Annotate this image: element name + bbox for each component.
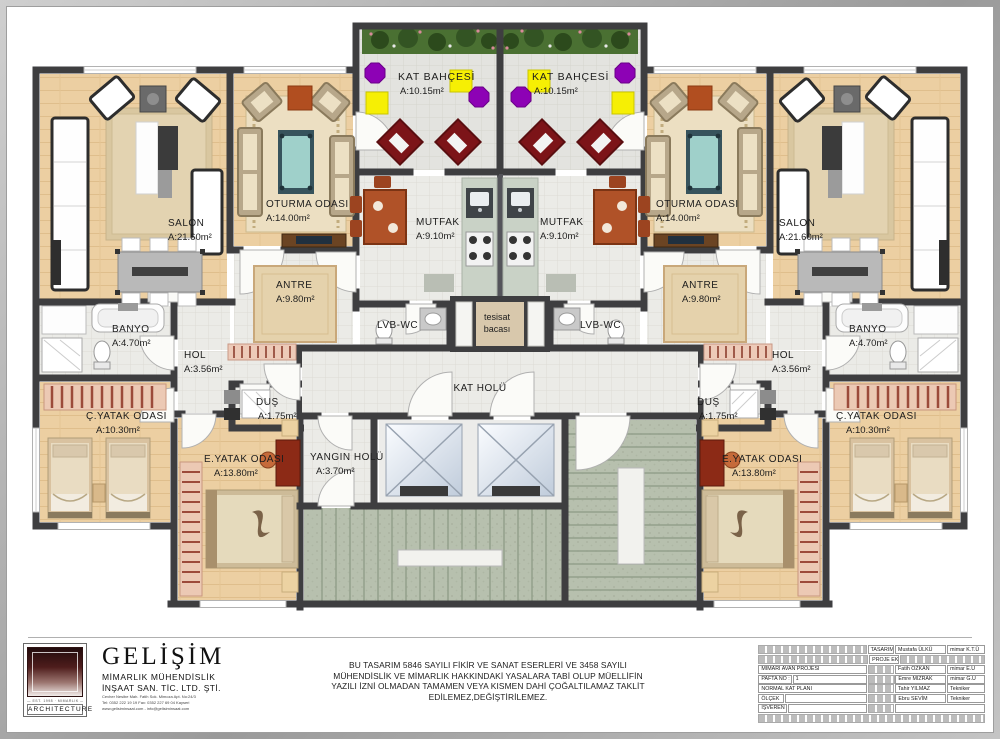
label-oturma-left-name: OTURMA ODASI [266,199,349,210]
brand-web: www.gelisiminsaat.com - info@gelisiminsa… [102,706,224,711]
disclaimer-line4: EDİLEMEZ,DEĞİŞTİRİLEMEZ. [288,692,688,703]
brand-phone: Tel: 0352 222 19 19 Fax: 0352 227 69 04 … [102,700,224,705]
label-katbahcesi-right-area: A:10.15m² [534,86,578,97]
copyright-disclaimer: BU TASARIM 5846 SAYILI FİKİR VE SANAT ES… [288,660,688,702]
company-logo: — EST. 1998 · MİMARLIK — İNŞAAT — ARCHIT… [23,643,87,717]
stair-landing-h [398,550,502,566]
label-hol-right-name: HOL [772,350,794,361]
project-type: MİMARİ AVAN PROJESİ [758,665,866,674]
label-salon-left-name: SALON [168,218,204,229]
label-dus-left-name: DUŞ [256,397,279,408]
drawing-sheet-page: KAT BAHÇESİ KAT BAHÇESİ A:10.15m² A:10.1… [0,0,1000,739]
label-eyatak-right-name: E.YATAK ODASI [722,454,802,465]
label-cyatak-left-name: Ç.YATAK ODASI [86,411,167,422]
team-name: Tahir YILMAZ [895,684,946,693]
label-hol-left-area: A:3.56m² [184,364,223,375]
olcek-value [785,694,868,703]
floor-plan: KAT BAHÇESİ KAT BAHÇESİ A:10.15m² A:10.1… [0,0,1000,739]
checker-strip [868,704,894,713]
label-yangin-name: YANGIN HOLÜ [310,451,384,463]
checker-strip [868,694,895,703]
label-hol-right-area: A:3.56m² [772,364,811,375]
empty-cell [895,704,985,713]
label-cyatak-right-name: Ç.YATAK ODASI [836,411,917,422]
label-katbahcesi-left-area: A:10.15m² [400,86,444,97]
pafta-value: 1 [793,675,868,684]
label-yangin-area: A:3.70m² [316,466,355,477]
label-mutfak-left-area: A:9.10m² [416,231,455,242]
label-eyatak-right-area: A:13.80m² [732,468,776,479]
label-banyo-left-name: BANYO [112,324,150,335]
label-tesisat-1: tesisat [484,312,511,322]
checker-strip [900,655,985,664]
checker-strip [868,665,895,674]
disclaimer-line1: BU TASARIM 5846 SAYILI FİKİR VE SANAT ES… [288,660,688,671]
logo-architecture-label: ARCHITECTURE [27,704,83,715]
brand-address: Cevher Nesibe Mah. Fatih Sok. Mimoza Apt… [102,694,224,699]
label-oturma-left-area: A:14.00m² [266,213,310,224]
tasarim-label: TASARIM [868,645,895,654]
team-title: Tekniker [947,684,985,693]
label-oturma-right-name: OTURMA ODASI [656,199,739,210]
disclaimer-line3: YAZILI İZNİ OLMADAN TAMAMEN VEYA KISMEN … [288,681,688,692]
label-mutfak-left-name: MUTFAK [416,217,460,228]
tasarim-name: Mustafa ÜLKÜ [895,645,946,654]
label-mutfak-right-area: A:9.10m² [540,231,579,242]
label-oturma-right-area: A:14.00m² [656,213,700,224]
label-eyatak-left-name: E.YATAK ODASI [204,454,284,465]
label-mutfak-right-name: MUTFAK [540,217,584,228]
label-banyo-right-area: A:4.70m² [849,338,888,349]
tasarim-title: mimar K.T.Ü [947,645,985,654]
team-title: Tekniker [947,694,984,703]
label-antre-right-area: A:9.80m² [682,294,721,305]
label-salon-right-name: SALON [779,218,815,229]
label-dus-left-area: A:1.75m² [258,411,297,422]
pafta-label: PAFTA NO : [758,675,791,684]
team-name: Emre MIZRAK [895,675,946,684]
sheet-title: NORMAL KAT PLANI [758,684,866,693]
checker-strip [758,655,868,664]
checker-strip [868,684,895,693]
stair-landing-v [618,468,644,564]
logo-mark [27,647,83,697]
disclaimer-line2: MÜHENDİSLİK VE MİMARLIK HAKKINDAKİ YASAL… [288,671,688,682]
label-antre-left-name: ANTRE [276,280,312,291]
label-antre-right-name: ANTRE [682,280,718,291]
footer-separator [28,637,972,638]
brand-name: GELİŞİM [102,645,224,669]
label-lvbwc-left: LVB-WC [377,320,418,331]
label-banyo-right-name: BANYO [849,324,887,335]
checker-strip [758,645,866,654]
team-title: mimar G.Ü [947,675,984,684]
brand-line2: İNŞAAT SAN. TİC. LTD. ŞTİ. [102,683,224,693]
label-tesisat-2: bacası [484,324,511,334]
label-banyo-left-area: A:4.70m² [112,338,151,349]
olcek-label: ÖLÇEK [758,694,784,703]
label-hol-left-name: HOL [184,350,206,361]
label-dus-right-name: DUŞ [697,397,720,408]
team-name: Fatih ÖZKAN [895,665,946,674]
label-dus-right-area: A:1.75m² [699,411,738,422]
proje-ekibi-label: PROJE EKİBİ [869,655,899,664]
label-katholu: KAT HOLÜ [453,382,506,394]
brand-line1: MİMARLIK MÜHENDİSLİK [102,672,224,682]
label-eyatak-left-area: A:13.80m² [214,468,258,479]
label-salon-right-area: A:21.60m² [779,232,823,243]
label-katbahcesi-left-name: KAT BAHÇESİ [398,70,475,83]
team-title: mimar E.Ü [947,665,985,674]
isveren-value [788,704,867,713]
label-katbahcesi-right-name: KAT BAHÇESİ [532,70,609,83]
title-block-table: TASARIM Mustafa ÜLKÜ mimar K.T.Ü PROJE E… [758,645,985,723]
team-name: Ebru SEVİM [895,694,946,703]
company-name-block: GELİŞİM MİMARLIK MÜHENDİSLİK İNŞAAT SAN.… [102,645,224,711]
label-salon-left-area: A:21.60m² [168,232,212,243]
label-cyatak-left-area: A:10.30m² [96,425,140,436]
label-lvbwc-right: LVB-WC [580,320,621,331]
logo-tiny-text: — EST. 1998 · MİMARLIK — İNŞAAT — [27,699,83,703]
label-antre-left-area: A:9.80m² [276,294,315,305]
checker-strip [758,714,984,723]
checker-strip [868,675,895,684]
isveren-label: İŞVEREN [758,704,786,713]
label-cyatak-right-area: A:10.30m² [846,425,890,436]
